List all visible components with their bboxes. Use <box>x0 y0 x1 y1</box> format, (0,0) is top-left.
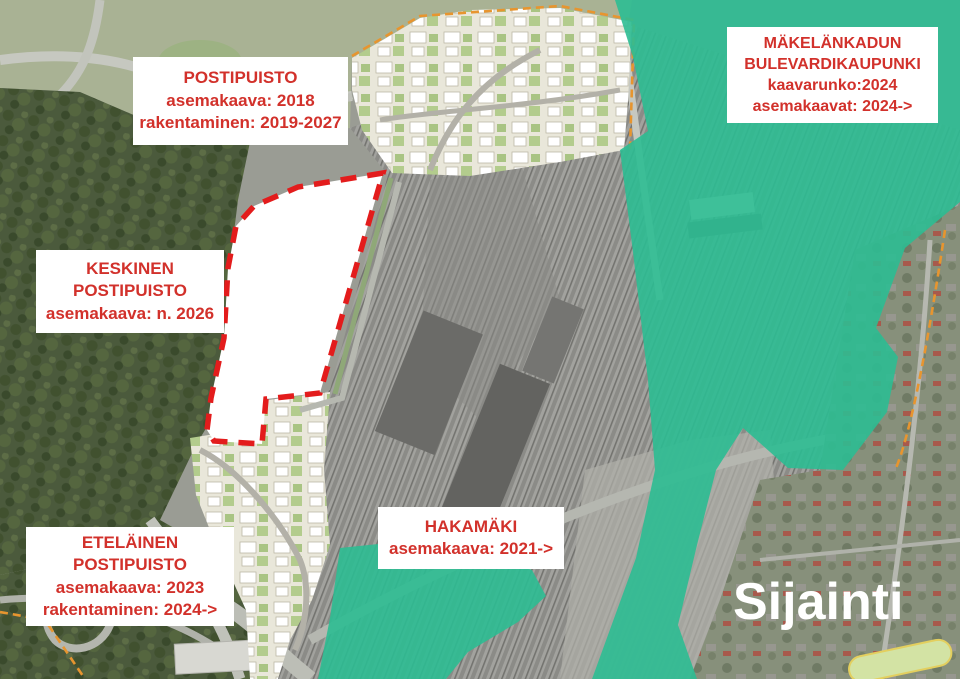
label-line: asemakaava: 2023 <box>32 577 228 599</box>
label-line: kaavarunko:2024 <box>733 75 932 96</box>
label-line: HAKAMÄKI <box>384 516 558 538</box>
label-makelankadun-bulevardikaupunki: MÄKELÄNKADUN BULEVARDIKAUPUNKI kaavarunk… <box>727 27 938 123</box>
label-line: POSTIPUISTO <box>42 280 218 302</box>
label-line: rakentaminen: 2019-2027 <box>139 112 342 134</box>
aerial-planning-map: POSTIPUISTO asemakaava: 2018 rakentamine… <box>0 0 960 679</box>
label-line: POSTIPUISTO <box>139 67 342 89</box>
label-line: asemakaava: 2021-> <box>384 538 558 560</box>
label-hakamaki: HAKAMÄKI asemakaava: 2021-> <box>378 507 564 569</box>
label-line: rakentaminen: 2024-> <box>32 599 228 621</box>
label-line: MÄKELÄNKADUN <box>733 33 932 54</box>
label-line: asemakaavat: 2024-> <box>733 96 932 117</box>
label-line: BULEVARDIKAUPUNKI <box>733 54 932 75</box>
label-line: POSTIPUISTO <box>32 554 228 576</box>
label-etelainen-postipuisto: ETELÄINEN POSTIPUISTO asemakaava: 2023 r… <box>26 527 234 626</box>
label-postipuisto: POSTIPUISTO asemakaava: 2018 rakentamine… <box>133 57 348 145</box>
label-line: ETELÄINEN <box>32 532 228 554</box>
watermark-sijainti: Sijainti <box>733 572 903 632</box>
label-line: KESKINEN <box>42 258 218 280</box>
label-keskinen-postipuisto: KESKINEN POSTIPUISTO asemakaava: n. 2026 <box>36 250 224 333</box>
label-line: asemakaava: 2018 <box>139 90 342 112</box>
label-line: asemakaava: n. 2026 <box>42 303 218 325</box>
